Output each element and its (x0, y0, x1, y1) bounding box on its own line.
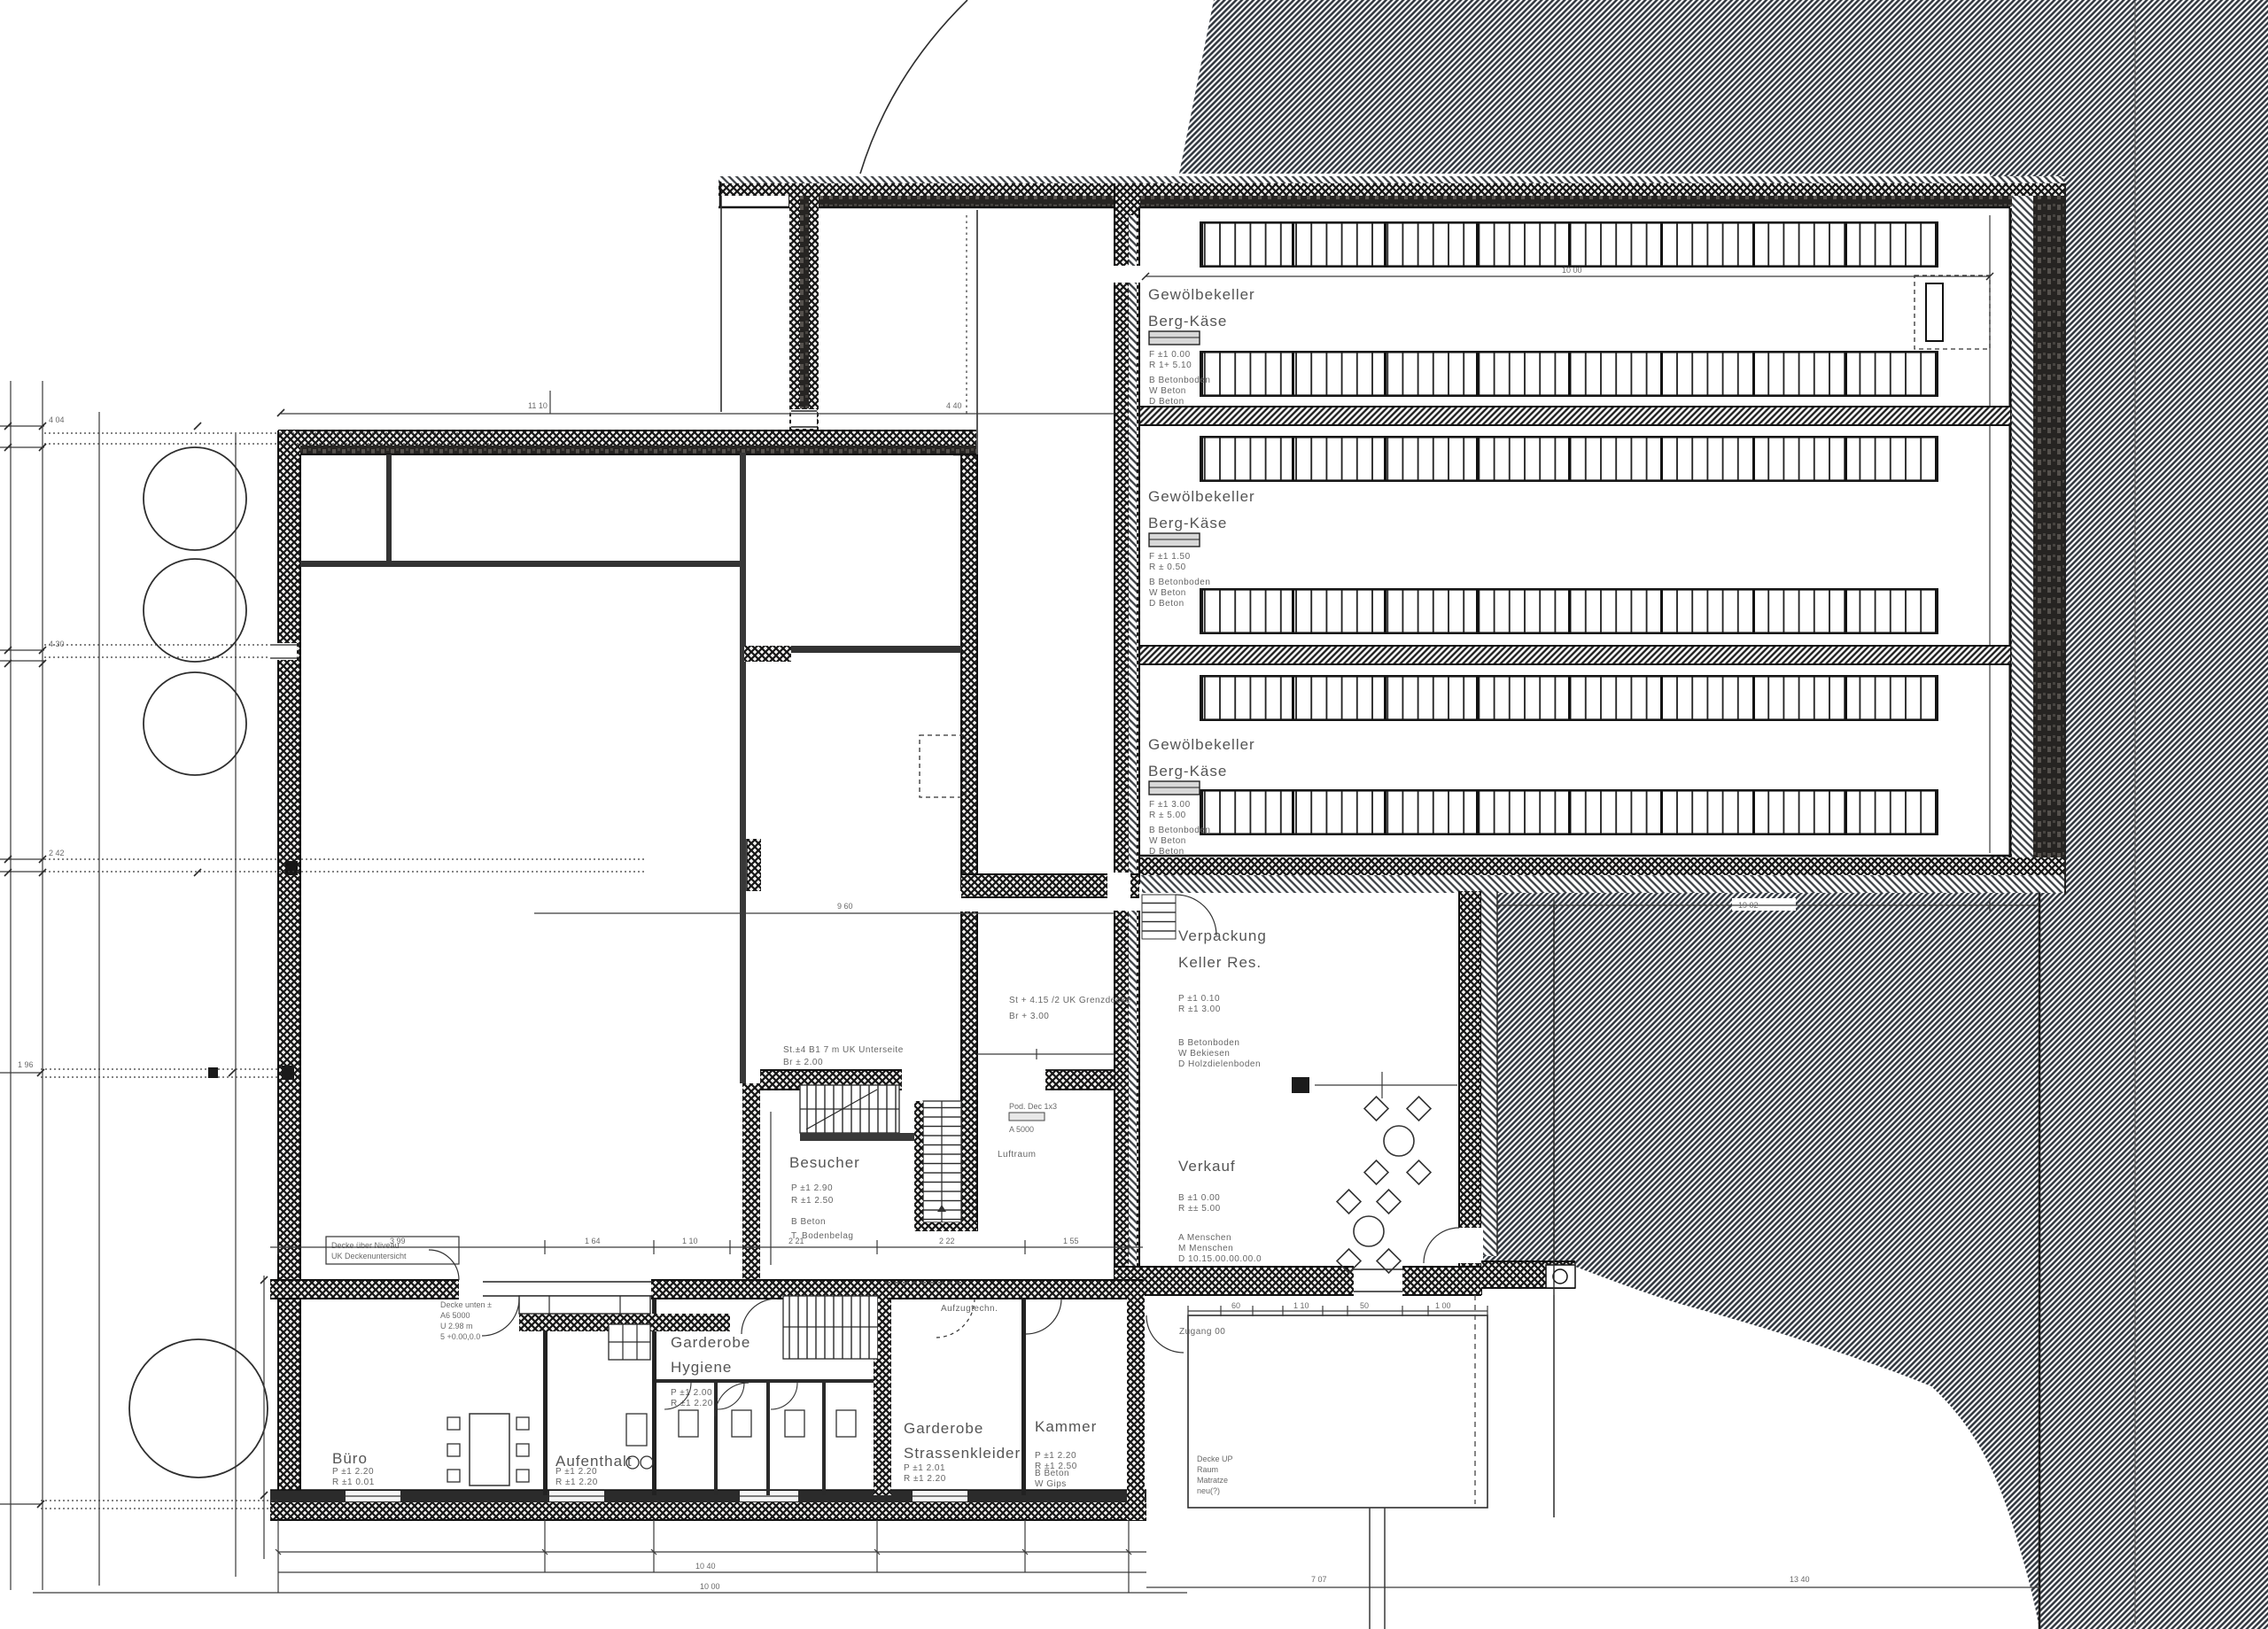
svg-text:Gewölbekeller: Gewölbekeller (1148, 488, 1255, 505)
svg-text:W Bekiesen: W Bekiesen (1178, 1049, 1230, 1059)
svg-text:Br + 3.00: Br + 3.00 (1009, 1012, 1049, 1021)
svg-text:D 10.15.00.00.00.0: D 10.15.00.00.00.0 (1178, 1254, 1262, 1264)
svg-text:Decke unten ±: Decke unten ± (440, 1300, 492, 1309)
svg-text:W Beton: W Beton (1149, 386, 1186, 396)
svg-text:R ±± 5.00: R ±± 5.00 (1178, 1204, 1221, 1214)
svg-text:4 30: 4 30 (49, 640, 65, 648)
svg-text:Besucher: Besucher (789, 1154, 860, 1171)
svg-text:Matratze: Matratze (1197, 1476, 1228, 1485)
svg-text:7 07: 7 07 (1311, 1575, 1327, 1584)
svg-text:2 22: 2 22 (939, 1237, 955, 1245)
svg-text:R ±1 2.20: R ±1 2.20 (555, 1478, 598, 1487)
svg-text:1 96: 1 96 (18, 1060, 34, 1069)
svg-text:F ±1 3.00: F ±1 3.00 (1149, 800, 1191, 810)
svg-text:Berg-Käse: Berg-Käse (1148, 763, 1227, 780)
svg-text:R 1+ 5.10: R 1+ 5.10 (1149, 361, 1192, 370)
svg-text:P ±1 2.01: P ±1 2.01 (904, 1463, 945, 1473)
svg-text:P ±1 2.90: P ±1 2.90 (791, 1183, 833, 1193)
svg-text:A6 5000: A6 5000 (440, 1311, 470, 1320)
svg-text:2 21: 2 21 (788, 1237, 804, 1245)
svg-text:R ±1 0.01: R ±1 0.01 (332, 1478, 375, 1487)
svg-text:Luftraum: Luftraum (998, 1150, 1036, 1160)
svg-text:Verkauf: Verkauf (1178, 1158, 1236, 1175)
svg-text:1 10: 1 10 (682, 1237, 698, 1245)
svg-text:1 55: 1 55 (1063, 1237, 1079, 1245)
svg-text:2 42: 2 42 (49, 849, 65, 857)
svg-text:10 00: 10 00 (700, 1582, 720, 1591)
svg-text:Decke UP: Decke UP (1197, 1454, 1233, 1463)
svg-text:A Menschen: A Menschen (1178, 1233, 1231, 1243)
svg-text:B Beton: B Beton (791, 1217, 826, 1227)
svg-text:St + 4.15 /2 UK Grenzdecke: St + 4.15 /2 UK Grenzdecke (1009, 996, 1131, 1005)
svg-text:P ±1 2.20: P ±1 2.20 (1035, 1451, 1076, 1461)
svg-text:9 60: 9 60 (837, 902, 853, 911)
svg-text:B Betonboden: B Betonboden (1149, 578, 1210, 587)
svg-text:M Menschen: M Menschen (1178, 1244, 1233, 1253)
svg-text:neu(?): neu(?) (1197, 1486, 1220, 1495)
svg-text:P ±1 2.20: P ±1 2.20 (332, 1467, 374, 1477)
svg-text:F ±1 0.00: F ±1 0.00 (1149, 350, 1191, 360)
svg-text:Garderobe: Garderobe (904, 1420, 983, 1437)
svg-text:A 5000: A 5000 (1009, 1125, 1034, 1134)
svg-text:4 04: 4 04 (49, 415, 65, 424)
svg-text:R ±1 2.50: R ±1 2.50 (791, 1196, 834, 1206)
svg-text:P ±1 0.10: P ±1 0.10 (1178, 994, 1220, 1004)
svg-text:U 2.98 m: U 2.98 m (440, 1322, 473, 1330)
svg-text:D Beton: D Beton (1149, 397, 1184, 407)
svg-text:Aufzugtechn.: Aufzugtechn. (941, 1304, 998, 1314)
svg-text:Zugang 00: Zugang 00 (1179, 1327, 1225, 1337)
svg-text:Gewölbekeller: Gewölbekeller (1148, 286, 1255, 303)
svg-text:Keller Res.: Keller Res. (1178, 954, 1262, 971)
svg-text:D Beton: D Beton (1149, 847, 1184, 857)
svg-text:R ±1 3.00: R ±1 3.00 (1178, 1005, 1221, 1014)
svg-text:Berg-Käse: Berg-Käse (1148, 515, 1227, 531)
svg-text:St.±4 B1 7 m UK Unterseite: St.±4 B1 7 m UK Unterseite (783, 1045, 904, 1055)
svg-text:Büro: Büro (332, 1450, 368, 1467)
svg-text:B Beton: B Beton (1035, 1469, 1069, 1478)
svg-text:Gewölbekeller: Gewölbekeller (1148, 736, 1255, 753)
svg-text:1 64: 1 64 (585, 1237, 601, 1245)
svg-text:B Betonboden: B Betonboden (1149, 826, 1210, 835)
svg-text:Kammer: Kammer (1035, 1418, 1097, 1435)
svg-text:50: 50 (1360, 1301, 1369, 1310)
svg-text:R ± 0.50: R ± 0.50 (1149, 562, 1186, 572)
svg-text:19 02: 19 02 (1738, 901, 1759, 910)
svg-text:Berg-Käse: Berg-Käse (1148, 313, 1227, 330)
svg-text:D Holzdielenboden: D Holzdielenboden (1178, 1059, 1261, 1069)
svg-text:R ± 5.00: R ± 5.00 (1149, 811, 1186, 820)
svg-text:B Betonboden: B Betonboden (1149, 376, 1210, 385)
svg-text:B Betonboden: B Betonboden (1178, 1038, 1239, 1048)
svg-text:11 10: 11 10 (528, 401, 548, 410)
svg-text:P ±1 2.00: P ±1 2.00 (671, 1388, 712, 1398)
svg-text:Garderobe: Garderobe (671, 1334, 750, 1351)
svg-text:Strassenkleider: Strassenkleider (904, 1445, 1021, 1462)
svg-text:13 40: 13 40 (1790, 1575, 1810, 1584)
svg-text:3 99: 3 99 (390, 1237, 406, 1245)
svg-text:10 40: 10 40 (695, 1562, 716, 1571)
svg-text:W Gips: W Gips (1035, 1479, 1067, 1489)
svg-text:Pod. Dec 1x3: Pod. Dec 1x3 (1009, 1102, 1057, 1111)
svg-text:R ±1 2.20: R ±1 2.20 (904, 1474, 946, 1484)
svg-text:D Beton: D Beton (1149, 599, 1184, 609)
svg-text:Verpackung: Verpackung (1178, 927, 1267, 944)
svg-text:1 00: 1 00 (1435, 1301, 1451, 1310)
svg-text:10 00: 10 00 (1562, 266, 1582, 275)
svg-text:F ±1 1.50: F ±1 1.50 (1149, 552, 1191, 562)
svg-text:P ±1 2.20: P ±1 2.20 (555, 1467, 597, 1477)
svg-text:R ±1 2.20: R ±1 2.20 (671, 1399, 713, 1408)
svg-text:4 40: 4 40 (946, 401, 962, 410)
svg-text:Raum: Raum (1197, 1465, 1218, 1474)
svg-text:Br ± 2.00: Br ± 2.00 (783, 1058, 823, 1067)
svg-text:W Beton: W Beton (1149, 588, 1186, 598)
svg-text:B ±1 0.00: B ±1 0.00 (1178, 1193, 1220, 1203)
svg-text:5 +0.00,0.0: 5 +0.00,0.0 (440, 1332, 480, 1341)
svg-text:UK Deckenuntersicht: UK Deckenuntersicht (331, 1252, 407, 1261)
svg-text:W Beton: W Beton (1149, 836, 1186, 846)
svg-text:1 10: 1 10 (1293, 1301, 1309, 1310)
svg-text:Hygiene: Hygiene (671, 1359, 732, 1376)
svg-text:60: 60 (1231, 1301, 1240, 1310)
